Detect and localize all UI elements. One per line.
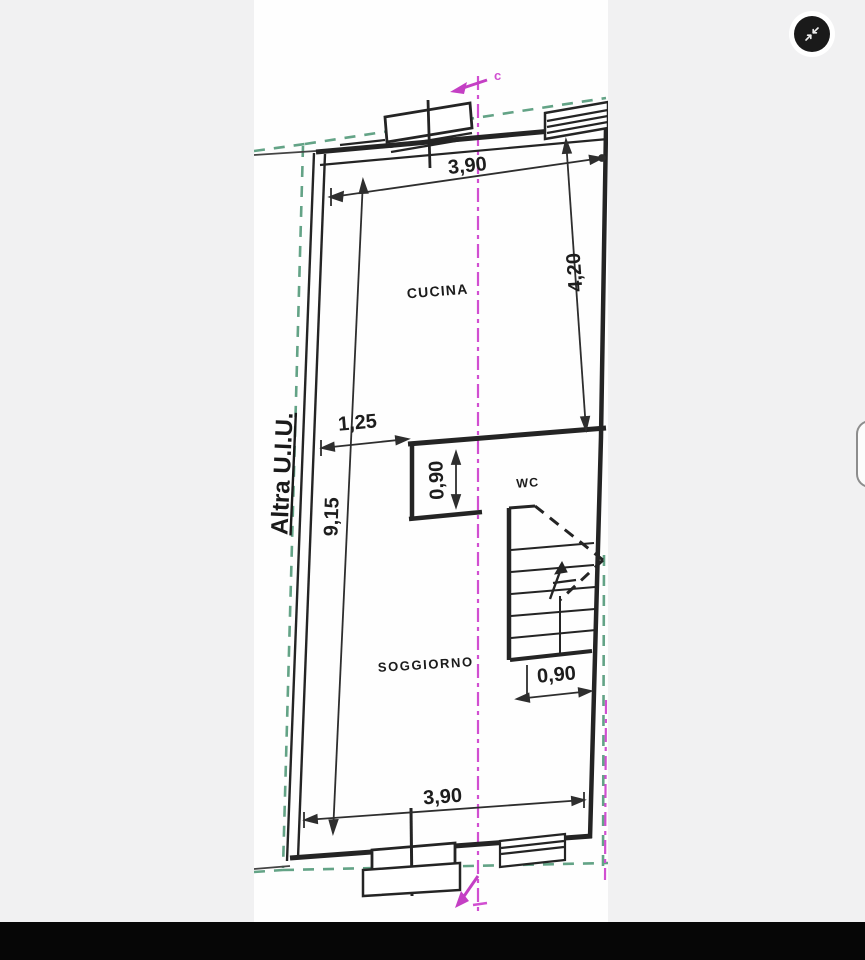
dim-kitchen-depth: 4,20 [563,252,588,292]
floorplan-image: c [254,0,608,922]
dim-top-width: 3,90 [447,153,488,179]
dimension-lines [304,140,605,833]
room-label-soggiorno: SOGGIORNO [377,654,474,675]
side-sheet-handle[interactable] [856,420,865,488]
dim-bottom-width: 3,90 [422,785,462,810]
dim-length: 9,15 [320,497,343,537]
stairs [509,506,603,660]
dim-stair: 0,90 [536,662,577,687]
boundary-label: Altra U.I.U. [266,412,298,536]
dim-niche: 0,90 [425,460,448,500]
section-letter: c [494,68,501,83]
floorplan-drawing: c [254,0,608,922]
collapse-button[interactable] [794,16,830,52]
bottom-bar [0,922,865,960]
room-label-cucina: CUCINA [406,281,469,302]
collapse-arrows-icon [804,26,820,42]
dim-opening: 1,25 [337,410,378,435]
bottom-door-windows [363,808,565,896]
room-label-wc: WC [516,475,540,491]
